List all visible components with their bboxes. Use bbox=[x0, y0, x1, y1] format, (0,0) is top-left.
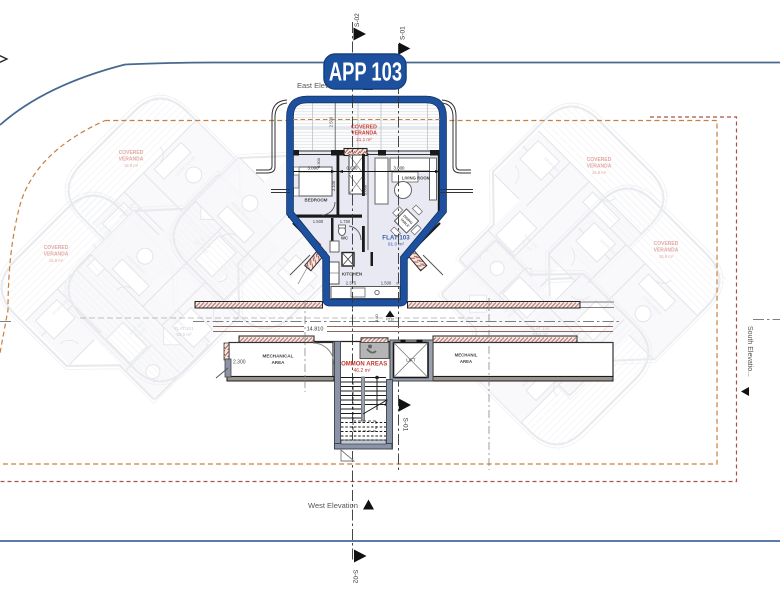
svg-text:WC: WC bbox=[341, 236, 348, 241]
svg-text:S-01: S-01 bbox=[402, 418, 409, 432]
svg-text:1.750: 1.750 bbox=[340, 219, 351, 224]
svg-text:VERANDA: VERANDA bbox=[119, 157, 144, 163]
svg-text:AREA: AREA bbox=[271, 360, 285, 365]
svg-text:0.300: 0.300 bbox=[316, 157, 321, 168]
svg-text:S-01: S-01 bbox=[400, 26, 407, 40]
svg-text:2.375: 2.375 bbox=[346, 281, 357, 286]
svg-text:South Elevatio...: South Elevatio... bbox=[746, 326, 753, 377]
svg-text:2.500: 2.500 bbox=[329, 116, 334, 127]
svg-text:15.8 m²: 15.8 m² bbox=[592, 170, 607, 175]
svg-text:1.500: 1.500 bbox=[381, 281, 392, 286]
svg-text:LIVING ROOM: LIVING ROOM bbox=[402, 176, 431, 181]
svg-text:4.60: 4.60 bbox=[374, 313, 379, 322]
svg-text:COVERED: COVERED bbox=[44, 245, 69, 251]
svg-text:15.8 m²: 15.8 m² bbox=[124, 163, 139, 168]
svg-text:15.8 m²: 15.8 m² bbox=[659, 254, 674, 259]
svg-text:AREA: AREA bbox=[460, 359, 472, 364]
svg-text:COVERED: COVERED bbox=[587, 157, 612, 163]
svg-text:15.8 m²: 15.8 m² bbox=[49, 258, 64, 263]
svg-text:S-02: S-02 bbox=[354, 13, 361, 27]
svg-text:FLAT 101: FLAT 101 bbox=[174, 326, 194, 331]
svg-text:LIFT: LIFT bbox=[406, 358, 416, 363]
svg-text:3.800: 3.800 bbox=[394, 166, 406, 171]
svg-text:VERANDA: VERANDA bbox=[654, 248, 679, 254]
svg-text:West Elevation: West Elevation bbox=[308, 501, 358, 510]
svg-text:1.500: 1.500 bbox=[313, 219, 324, 224]
svg-text:21.1 m²: 21.1 m² bbox=[356, 137, 372, 142]
svg-text:91.0 m²: 91.0 m² bbox=[388, 242, 405, 248]
svg-text:MECHANIL: MECHANIL bbox=[455, 353, 478, 358]
svg-text:APP 103: APP 103 bbox=[329, 58, 402, 87]
svg-text:COVERED: COVERED bbox=[654, 241, 679, 247]
svg-text:VERANDA: VERANDA bbox=[44, 252, 69, 258]
svg-text:5.000: 5.000 bbox=[363, 184, 368, 195]
svg-text:MECHANICAL: MECHANICAL bbox=[263, 354, 294, 359]
svg-text:VERANDA: VERANDA bbox=[351, 131, 377, 137]
svg-text:14.810: 14.810 bbox=[307, 327, 324, 333]
svg-text:VERANDA: VERANDA bbox=[587, 164, 612, 170]
svg-text:S-02: S-02 bbox=[352, 570, 359, 584]
svg-text:FLAT 103: FLAT 103 bbox=[382, 235, 410, 242]
svg-text:2.300: 2.300 bbox=[233, 360, 246, 366]
svg-text:46.2 m²: 46.2 m² bbox=[354, 368, 371, 374]
svg-text:93.0 m²: 93.0 m² bbox=[176, 332, 192, 337]
svg-text:+3.10: +3.10 bbox=[386, 318, 394, 322]
svg-text:COMMON AREAS: COMMON AREAS bbox=[337, 362, 387, 368]
svg-text:3.100: 3.100 bbox=[331, 180, 336, 191]
svg-text:COVERED: COVERED bbox=[119, 150, 144, 156]
svg-text:BEDROOM: BEDROOM bbox=[305, 198, 328, 203]
